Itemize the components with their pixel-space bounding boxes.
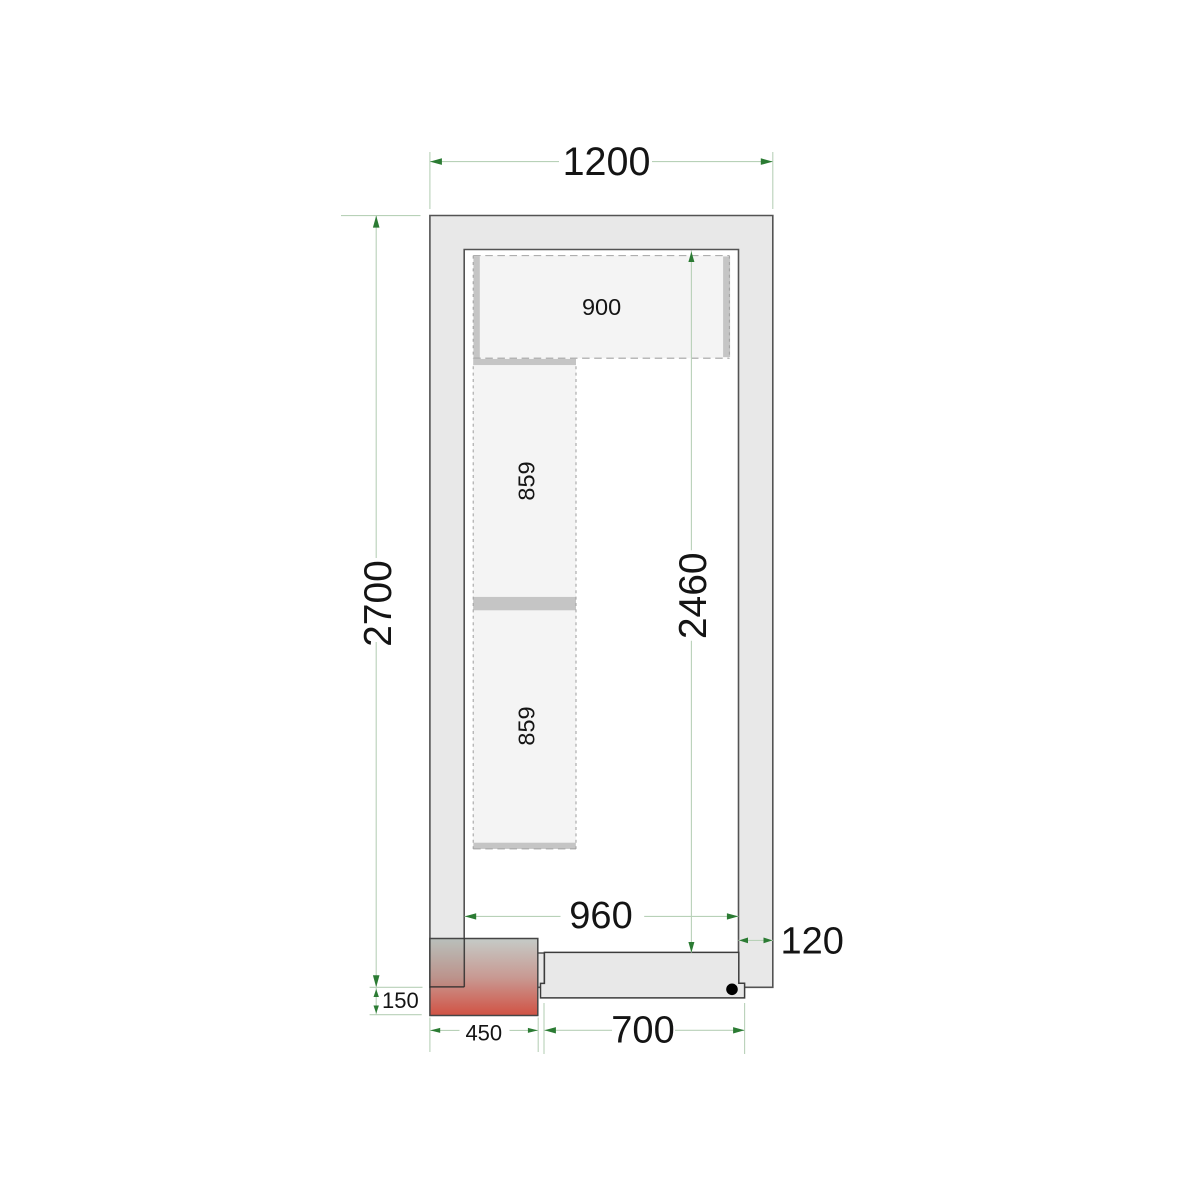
svg-text:2700: 2700 <box>357 560 400 647</box>
svg-text:700: 700 <box>611 1010 674 1052</box>
svg-text:120: 120 <box>781 920 844 962</box>
svg-text:2460: 2460 <box>672 552 715 639</box>
svg-text:450: 450 <box>465 1020 502 1045</box>
svg-text:900: 900 <box>582 294 621 320</box>
svg-text:150: 150 <box>382 988 419 1013</box>
svg-text:1200: 1200 <box>563 140 651 184</box>
svg-text:859: 859 <box>514 706 540 745</box>
svg-text:960: 960 <box>569 895 632 937</box>
svg-text:859: 859 <box>514 461 540 500</box>
